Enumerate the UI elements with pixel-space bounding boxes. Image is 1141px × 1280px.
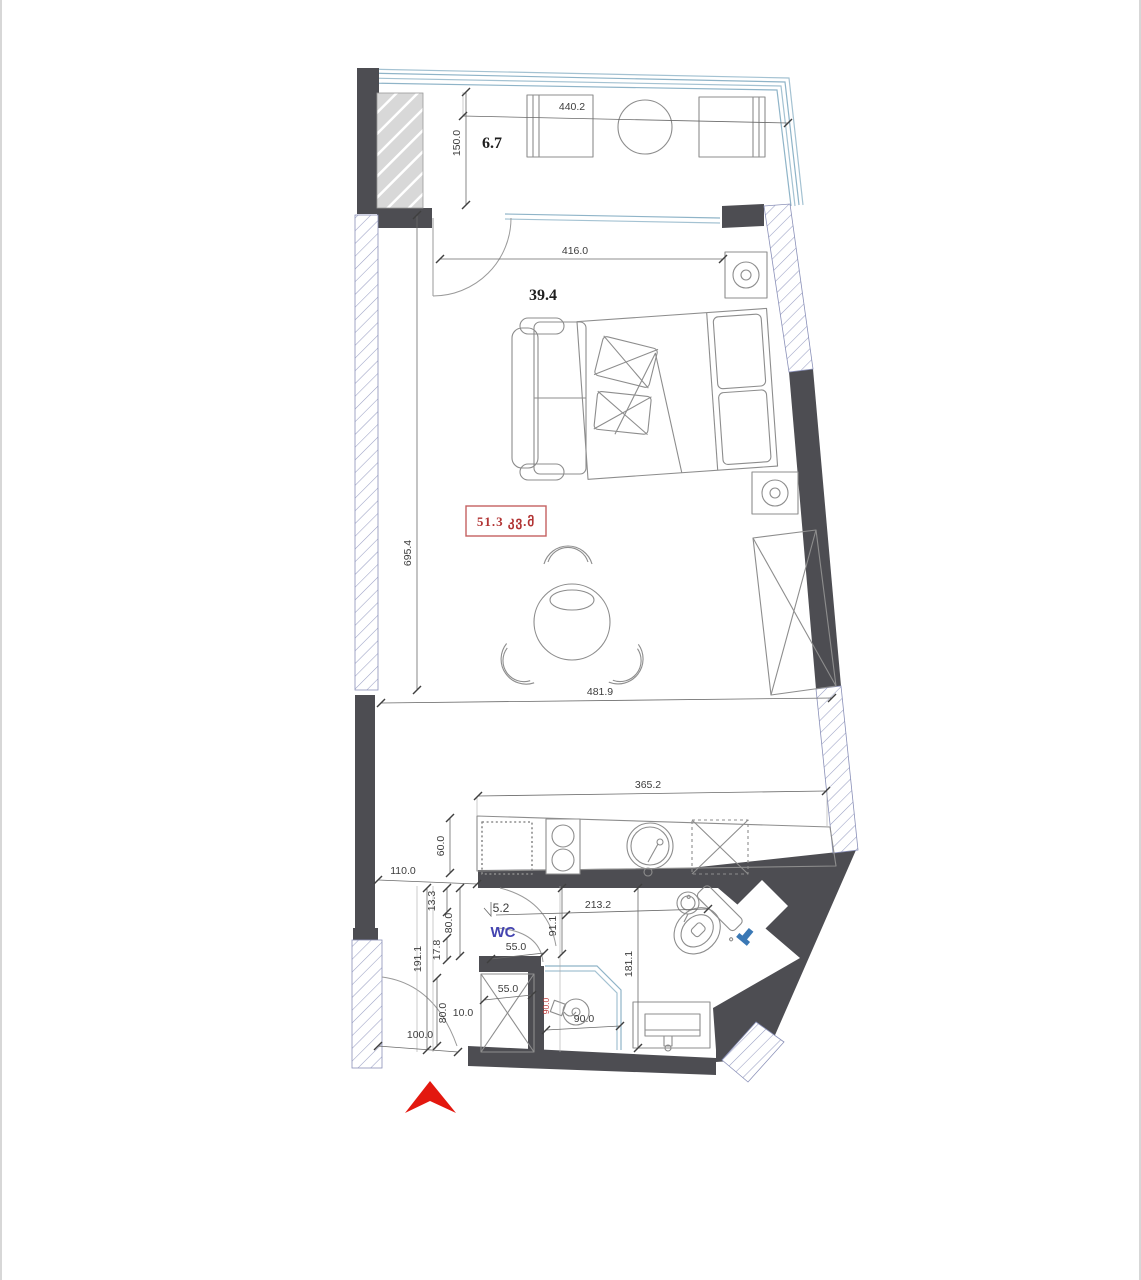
dim-wc-80a: 80.0: [443, 913, 455, 934]
total-area-label: 51.3 კვ.მ: [477, 514, 535, 530]
dim-kitchen-depth: 60.0: [435, 836, 447, 857]
wall-hatch-gray-top: [377, 93, 423, 208]
total-area-box: 51.3 კვ.მ: [466, 506, 546, 536]
dim-shower-90: 90.0: [574, 1013, 595, 1025]
dim-hall-height: 191.1: [412, 946, 424, 972]
dim-shower-90-red: 90.0: [541, 997, 551, 1014]
dim-kitchen-width: 365.2: [635, 779, 661, 791]
dim-room-height: 695.4: [402, 540, 414, 566]
bed: [577, 308, 778, 479]
wall-hatch-entry: [352, 940, 382, 1068]
dim-wc-13: 13.3: [426, 891, 438, 912]
balcony-door-arc: [433, 218, 511, 296]
kitchen-base-unit: [482, 822, 532, 874]
wall-balcony-right-stub: [722, 204, 764, 228]
glazed-facade: [365, 69, 803, 206]
dim-entry-10: 10.0: [453, 1007, 474, 1019]
wc-name-label: WC: [491, 924, 516, 941]
balcony-area-label: 6.7: [482, 135, 502, 152]
dim-entry-80: 80.0: [437, 1003, 449, 1024]
sofa: [512, 318, 586, 480]
balcony-table: [618, 100, 672, 154]
dim-wm-55: 55.0: [498, 983, 519, 995]
doors: [382, 218, 556, 1046]
wall-hatch-left-main: [355, 215, 378, 690]
floor-plan-drawing: 440.2 150.0 416.0 695.4 481.9 365.2 60.0…: [0, 0, 1141, 1280]
wall-balcony-left-stub: [377, 208, 432, 228]
dim-wc-91: 91.1: [547, 916, 559, 937]
wc-area-mark: [484, 902, 491, 916]
dim-kitchen-offset: 110.0: [390, 865, 416, 877]
dim-room-width-top: 416.0: [562, 245, 588, 257]
dim-room-width-bottom: 481.9: [587, 686, 613, 698]
floor-plan-page: 440.2 150.0 416.0 695.4 481.9 365.2 60.0…: [0, 0, 1141, 1280]
entry-arrow-icon: [405, 1081, 456, 1113]
nightstand-bottom: [752, 472, 798, 514]
dim-entry-100: 100.0: [407, 1029, 433, 1041]
living-area-label: 39.4: [529, 287, 557, 304]
dim-wc-181: 181.1: [623, 951, 635, 977]
dim-wc-door: 55.0: [506, 941, 527, 953]
dim-wc-17: 17.8: [431, 940, 443, 961]
dimension-labels: 440.2 150.0 416.0 695.4 481.9 365.2 60.0…: [390, 101, 661, 1041]
wc-area-label: 5.2: [493, 901, 510, 915]
wall-hatch-right-lower: [816, 686, 858, 853]
windows: [505, 214, 720, 1050]
wall-hatch-right-upper: [764, 204, 813, 372]
dim-wc-width: 213.2: [585, 899, 611, 911]
dim-balcony-width: 440.2: [559, 101, 585, 113]
vanity: [633, 1002, 710, 1051]
balcony-chair-right: [699, 97, 765, 157]
dim-balcony-depth: 150.0: [451, 130, 463, 156]
stove: [546, 819, 580, 874]
nightstand-top: [725, 252, 767, 298]
dining-set: [492, 546, 653, 693]
wall-bottom: [468, 1046, 716, 1075]
faucet-blue: [736, 925, 756, 945]
wall-left-mid: [355, 695, 375, 940]
wall-right-mid: [789, 369, 841, 689]
wall-top-left: [357, 68, 379, 214]
